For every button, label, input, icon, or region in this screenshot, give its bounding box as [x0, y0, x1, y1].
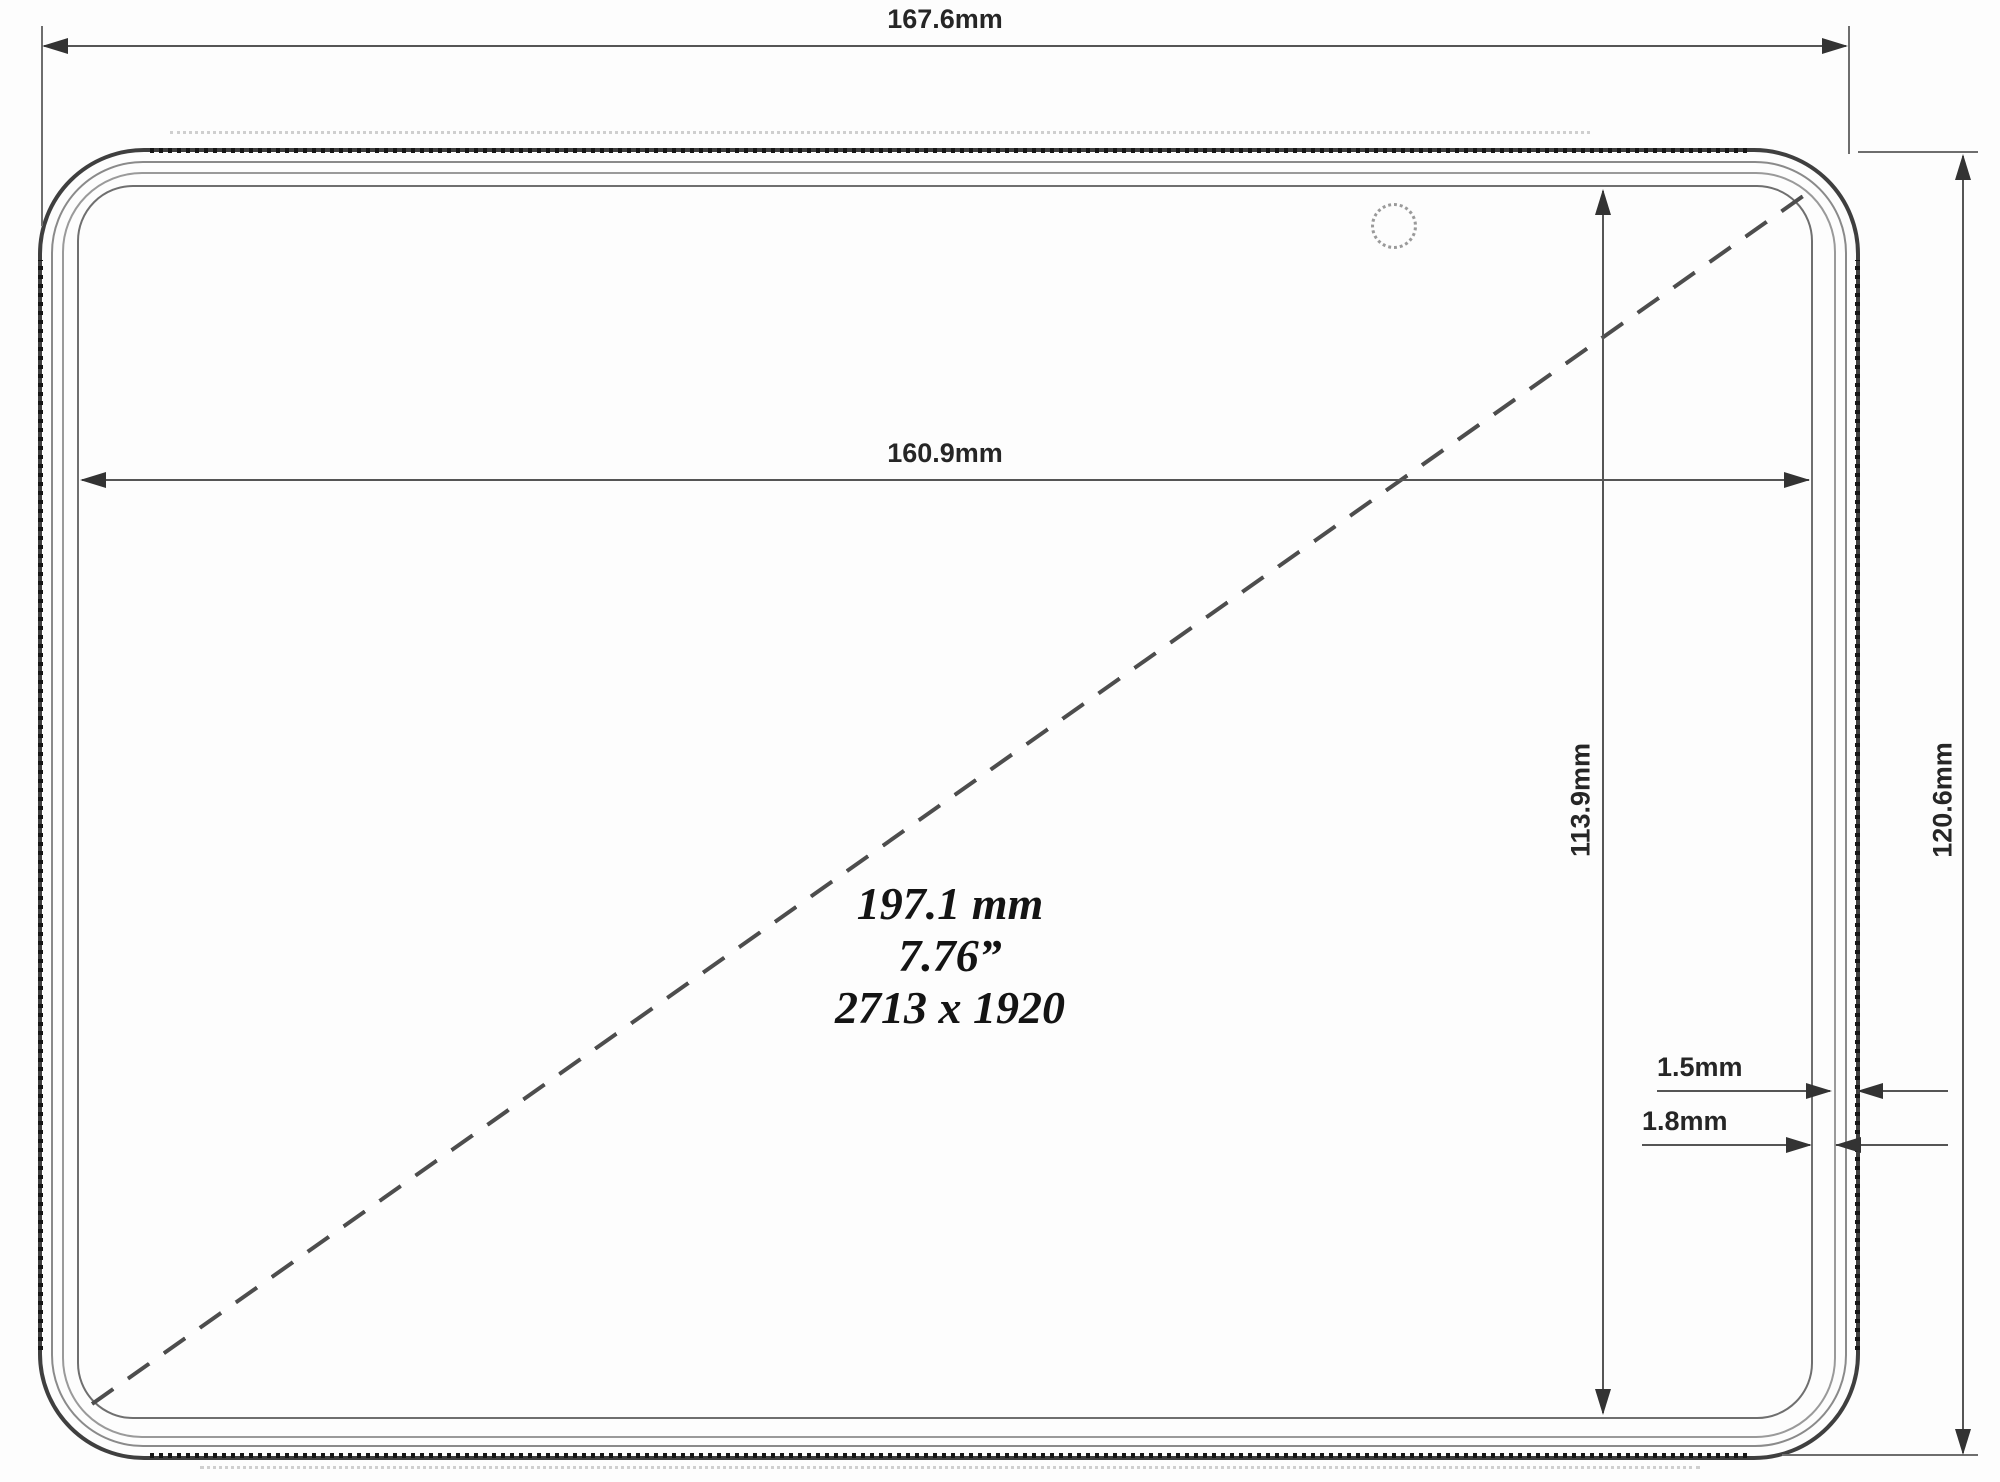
arrowhead-up-icon: [1595, 189, 1611, 215]
faint-edge-line-top: [170, 131, 1590, 134]
display-width-dimension-line: [82, 479, 1809, 481]
diagonal-mm-text: 197.1 mm: [700, 878, 1200, 930]
arrowhead-right-icon: [1806, 1083, 1832, 1099]
wall-thickness-leader-left: [1657, 1090, 1830, 1092]
arrowhead-up-icon: [1955, 154, 1971, 180]
tablet-dimension-drawing: 167.6mm 160.9mm 113.9mm 120.6mm 1.5mm 1.…: [0, 0, 2000, 1482]
knurled-edge-right: [1855, 260, 1860, 1350]
overall-height-label: 120.6mm: [1928, 742, 1959, 858]
extension-line-topright: [1858, 151, 1978, 153]
knurled-edge-bottom: [150, 1453, 1748, 1458]
camera-hole-circle: [1371, 203, 1417, 249]
extension-line-bottomright: [1782, 1454, 1978, 1456]
arrowhead-left-icon: [80, 472, 106, 488]
display-height-dimension-line: [1602, 191, 1604, 1413]
arrowhead-left-icon: [1835, 1137, 1861, 1153]
arrowhead-down-icon: [1955, 1429, 1971, 1455]
arrowhead-left-icon: [1857, 1083, 1883, 1099]
display-height-label: 113.9mm: [1566, 743, 1597, 857]
extension-line-right-top: [1848, 26, 1850, 154]
arrowhead-down-icon: [1595, 1389, 1611, 1415]
arrowhead-right-icon: [1784, 472, 1810, 488]
faint-edge-line-bottom: [200, 1466, 1700, 1469]
overall-width-label: 167.6mm: [845, 4, 1045, 35]
diagonal-inches-text: 7.76”: [700, 930, 1200, 982]
bezel-gap-leader-left: [1642, 1144, 1810, 1146]
screen-spec-annotation: 197.1 mm 7.76” 2713 x 1920: [700, 878, 1200, 1034]
arrowhead-right-icon: [1786, 1137, 1812, 1153]
resolution-text: 2713 x 1920: [700, 982, 1200, 1034]
wall-thickness-label: 1.5mm: [1657, 1052, 1743, 1083]
overall-width-dimension-line: [44, 45, 1846, 47]
display-width-label: 160.9mm: [845, 438, 1045, 469]
arrowhead-right-icon: [1822, 38, 1848, 54]
arrowhead-left-icon: [42, 38, 68, 54]
extension-line-left-top: [41, 26, 43, 226]
overall-height-dimension-line: [1962, 156, 1964, 1453]
knurled-edge-left: [38, 260, 43, 1350]
knurled-edge-top: [150, 148, 1748, 153]
bezel-gap-label: 1.8mm: [1642, 1106, 1728, 1137]
